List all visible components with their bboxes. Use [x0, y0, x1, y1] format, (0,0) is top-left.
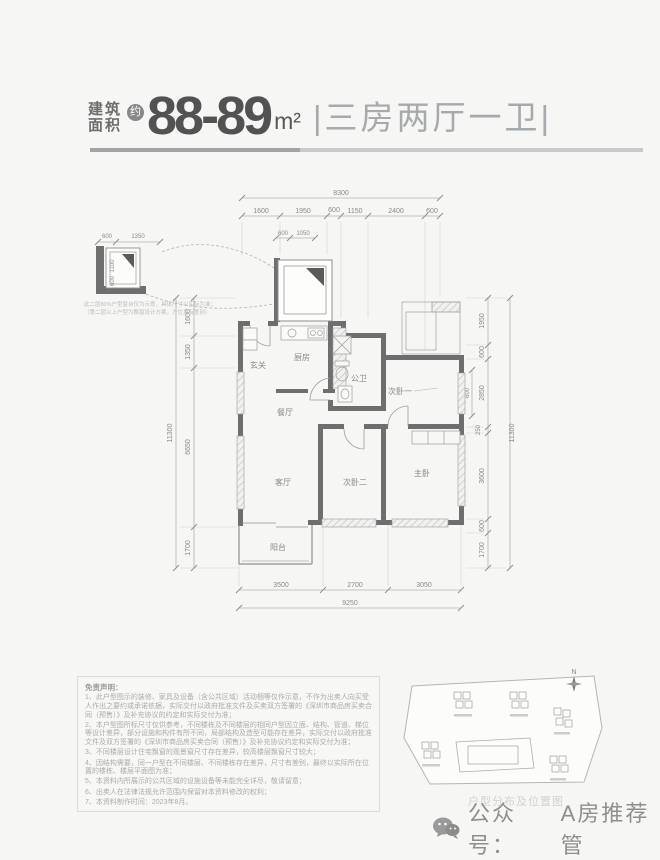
disclaimer-line: 3、不同楼层设计住宅飘窗的观景窗尺寸存在差异，较高楼层飘窗尺寸较大； — [85, 749, 372, 758]
unit-type-text: |三房两厅一卫| — [313, 100, 552, 136]
room-kitchen: 厨房 — [294, 352, 310, 362]
footer-account-name: A房推荐管 — [561, 796, 660, 860]
dim-right-total: 11300 — [509, 423, 516, 442]
ac-platform — [402, 302, 460, 354]
approx-badge: 约 — [127, 104, 144, 121]
dim: 6650 — [185, 439, 192, 455]
divider-light-segment — [300, 148, 643, 152]
area-label: 建筑 面积 — [88, 102, 122, 134]
dim: 600 — [328, 207, 340, 214]
disclaimer-line: 2、本户型图所标尺寸仅供参考，不同楼栋及不同楼层的相同户型因立面、结构、管道、梯… — [85, 722, 372, 748]
bay-window-inset: 600 1350 1100 600 此二层80%户型窗台仅为示意，具体尺寸以实际… — [84, 234, 274, 316]
dim: 600 — [278, 231, 289, 237]
room-living: 客厅 — [275, 477, 291, 487]
dim: 1150 — [347, 208, 362, 215]
room-master: 主卧 — [414, 468, 430, 478]
room-dining: 餐厅 — [277, 408, 293, 417]
dim: 600 — [465, 387, 471, 398]
dim: 600 — [479, 520, 486, 532]
dim: 600 — [102, 234, 113, 240]
inset-note-2: （第二层以上户型为飘窗设计方案，方位另有差别） — [84, 308, 211, 316]
footer-account-prefix: 公众号： — [468, 796, 553, 860]
inset-note-1: 此二层80%户型窗台仅为示意，具体尺寸以实际为准； — [84, 300, 216, 308]
dim: 1950 — [479, 313, 486, 329]
bedroom1-leader-line — [414, 388, 438, 391]
dim: 1350 — [185, 344, 192, 360]
dim: 3500 — [273, 582, 289, 589]
dim: 3050 — [416, 582, 432, 589]
dim: 1350 — [131, 234, 145, 240]
dim: 2700 — [347, 582, 363, 589]
room-entry: 玄关 — [250, 360, 266, 370]
room-balcony: 阳台 — [270, 542, 286, 552]
dim: 2850 — [479, 385, 486, 401]
floor-plan: 8300 1600 1950 600 1150 2400 600 600 105… — [80, 178, 580, 648]
dim: 600 — [110, 275, 116, 286]
disclaimer-box: 免责声明： 1、此户型图示的装修、家具及设备（含公共区域）活动梱等仅作示意，不作… — [77, 676, 380, 812]
inset-leader-lines — [146, 245, 274, 309]
header-divider — [90, 148, 643, 152]
area-label-line2: 面积 — [88, 118, 122, 134]
dim-top-total: 8300 — [333, 190, 349, 197]
disclaimer-line: 6、出卖人在法律法规允许范围内保留对本资料修改的权利； — [85, 789, 372, 798]
dim: 1950 — [295, 208, 311, 215]
disclaimer-line: 5、本资料内所展示的公共区域的设施设备等未能完全详尽，敬请留意； — [85, 778, 372, 787]
dim: 1700 — [479, 542, 486, 558]
dim: 1700 — [185, 540, 192, 556]
disclaimer-line: 7、本资料制作时间：2023年8月。 — [85, 799, 372, 808]
site-plan: N — [398, 666, 608, 794]
divider-dark-segment — [90, 148, 300, 152]
wechat-icon — [432, 816, 460, 840]
dim: 1100 — [110, 259, 116, 273]
disclaimer-line: 4、因结构需要，同一户型在不同楼层、不同楼栋存在差异，尺寸有差别，最终以实际所在… — [85, 760, 372, 777]
dim-left-total: 11300 — [167, 423, 174, 442]
dim: 250 — [476, 424, 482, 435]
room-bath: 公卫 — [351, 374, 367, 383]
header: 建筑 面积 约 88-89 m² |三房两厅一卫| — [88, 95, 552, 137]
disclaimer-title: 免责声明： — [85, 683, 372, 692]
dim: 1600 — [253, 208, 269, 215]
dim: 3600 — [479, 468, 486, 484]
dim: 1050 — [296, 231, 310, 237]
dim-bottom-total: 9250 — [342, 600, 358, 607]
flyer-page: 建筑 面积 约 88-89 m² |三房两厅一卫| — [0, 0, 660, 837]
area-label-line1: 建筑 — [88, 102, 122, 118]
area-unit: m² — [274, 108, 301, 135]
dim: 600 — [479, 346, 486, 358]
dim: 600 — [426, 208, 438, 215]
extension-lines — [180, 222, 506, 586]
site-boundary — [404, 676, 602, 784]
disclaimer-line: 1、此户型图示的装修、家具及设备（含公共区域）活动梱等仅作示意，不作为出卖人向买… — [85, 694, 372, 720]
area-value: 88-89 — [147, 95, 270, 137]
dimension-ticks — [95, 195, 513, 611]
north-label: N — [571, 669, 576, 676]
bay-window — [278, 260, 332, 321]
dim: 2400 — [388, 208, 404, 215]
room-bedroom1: 次卧一 — [388, 386, 412, 396]
footer: 公众号： A房推荐管 — [432, 796, 660, 860]
room-bedroom2: 次卧二 — [343, 477, 367, 487]
